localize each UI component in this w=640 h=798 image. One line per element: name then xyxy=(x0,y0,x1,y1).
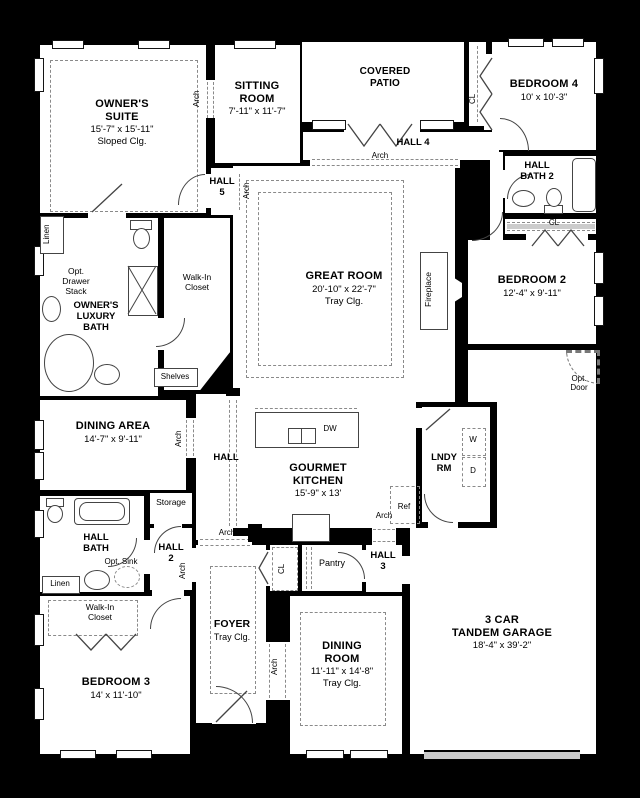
garage-dims: 18'-4" x 39'-2" xyxy=(418,640,586,651)
cl-label-bed2: CL xyxy=(544,218,564,227)
hall-bath2-name: HALL BATH 2 xyxy=(506,160,568,182)
bedroom2-dims: 12'-4" x 9'-11" xyxy=(468,288,596,299)
sitting-room-dims: 7'-11" x 11'-7" xyxy=(212,106,302,117)
great-room-name: GREAT ROOM xyxy=(274,270,414,283)
dining-room-dims: 11'-11" x 14'-8" xyxy=(298,666,386,677)
bedroom4-dims: 10' x 10'-3" xyxy=(492,92,596,103)
dining-room-name: DINING ROOM xyxy=(300,640,384,666)
owners-bath-name: OWNER'S LUXURY BATH xyxy=(58,300,134,334)
sitting-room-name: SITTING ROOM xyxy=(212,80,302,106)
great-room-ceiling: Tray Clg. xyxy=(274,296,414,307)
kitchen-name: GOURMET KITCHEN xyxy=(266,462,370,488)
arch-label-hall5: Arch xyxy=(242,176,255,206)
opt-drawer-stack-label: Opt. Drawer Stack xyxy=(50,266,102,296)
opt-sink-label: Opt. Sink xyxy=(98,557,144,566)
foyer-name: FOYER xyxy=(204,618,260,630)
pantry-label: Pantry xyxy=(304,558,360,569)
hall3-name: HALL 3 xyxy=(366,550,400,572)
arch-label-hall2: Arch xyxy=(178,556,191,586)
cl-label-foyer: CL xyxy=(277,556,291,582)
hall-label: HALL xyxy=(204,452,248,463)
kitchen-dims: 15'-9" x 13' xyxy=(266,488,370,499)
dryer-label: D xyxy=(464,466,482,475)
arch-label-foyer-top: Arch xyxy=(210,528,244,537)
owners-suite-ceiling: Sloped Clg. xyxy=(46,136,198,147)
bedroom3-name: BEDROOM 3 xyxy=(50,676,182,689)
floor-plan: OWNER'S SUITE 15'-7" x 15'-11" Sloped Cl… xyxy=(0,0,640,798)
dining-area-dims: 14'-7" x 9'-11" xyxy=(46,434,180,445)
arch-label-foyer-dining: Arch xyxy=(270,652,283,682)
opt-door-label: Opt. Door xyxy=(564,374,594,393)
dining-area-name: DINING AREA xyxy=(46,420,180,433)
arch-label-dining: Arch xyxy=(174,424,187,454)
covered-patio-name: COVERED PATIO xyxy=(330,66,440,90)
great-room-dims: 20'-10" x 22'-7" xyxy=(274,284,414,295)
owners-suite-name: OWNER'S SUITE xyxy=(46,98,198,124)
hall-bath-name: HALL BATH xyxy=(64,532,128,554)
bedroom2-name: BEDROOM 2 xyxy=(468,274,596,287)
linen-lower-label: Linen xyxy=(42,579,78,588)
dw-label: DW xyxy=(318,424,342,433)
hall4-name: HALL 4 xyxy=(386,137,440,148)
walkin-bed3-label: Walk-In Closet xyxy=(68,602,132,622)
bedroom4-name: BEDROOM 4 xyxy=(492,78,596,91)
laundry-name: LNDY RM xyxy=(420,452,468,474)
walkin-owners-label: Walk-In Closet xyxy=(166,272,228,292)
arch-label-hall4: Arch xyxy=(366,151,394,160)
fireplace-label: Fireplace xyxy=(423,258,443,322)
arch-label-suite: Arch xyxy=(192,84,205,114)
washer-label: W xyxy=(464,435,482,444)
hall5-name: HALL 5 xyxy=(209,176,235,198)
garage-name: 3 CAR TANDEM GARAGE xyxy=(418,614,586,640)
dining-room-ceiling: Tray Clg. xyxy=(298,678,386,689)
bedroom3-dims: 14' x 11'-10" xyxy=(50,690,182,701)
foyer-ceiling: Tray Clg. xyxy=(204,632,260,643)
linen-owners-label: Linen xyxy=(42,219,60,250)
cl-label-bed4: CL xyxy=(468,86,484,112)
arch-label-hall3: Arch xyxy=(370,511,398,520)
storage-label: Storage xyxy=(150,497,192,507)
shelves-label: Shelves xyxy=(154,372,196,381)
owners-suite-dims: 15'-7" x 15'-11" xyxy=(46,124,198,135)
